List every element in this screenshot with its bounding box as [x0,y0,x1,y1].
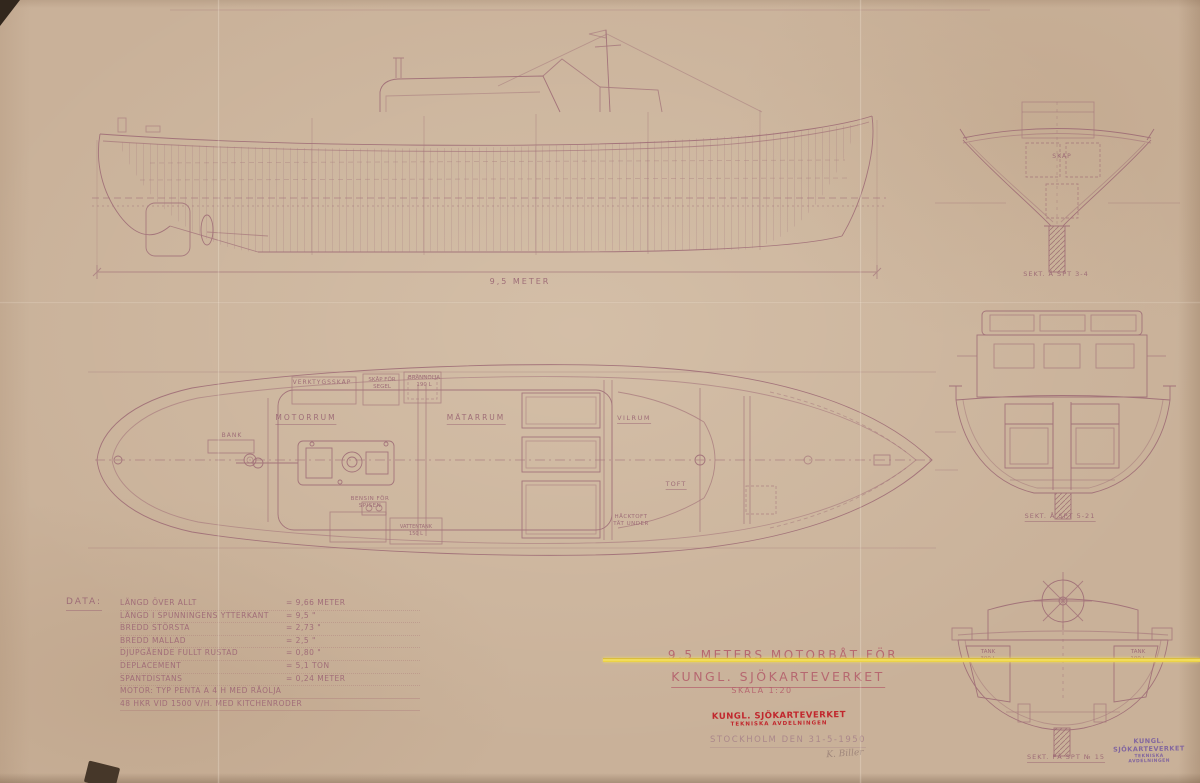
profile-view [92,30,886,279]
stamp-corner-line2: TEKNISKA AVDELNINGEN [1113,753,1185,765]
paper-crease-vertical [217,0,220,783]
plan-label-matarrum: MÄTARRUM [447,413,506,425]
table-row: LÄNGD I SPUNNINGENS YTTERKANT= 9,5 " [120,611,420,624]
bow-section-caption: SEKT. Å SPT 3-4 [1023,270,1089,278]
plan-label-vilrum: VILRUM [617,414,651,424]
stamp-corner-line1: KUNGL. SJÖKARTEVERKET [1113,737,1185,754]
plan-view [88,365,936,556]
profile-dimension-label: 9,5 METER [490,277,551,287]
table-row: DJUPGÅENDE FULLT RUSTAD= 0,80 " [120,648,420,661]
plan-label-motorrum: MOTORRUM [275,413,336,425]
stamp-corner: KUNGL. SJÖKARTEVERKET TEKNISKA AVDELNING… [1113,737,1185,765]
stern-section-caption: SEKT. PÅ SPT № 15 [1027,753,1105,763]
table-row: LÄNGD ÖVER ALLT= 9,66 METER [120,598,420,611]
date-line: STOCKHOLM DEN 31-5-1950 [710,735,866,748]
plan-label-bank: BÄNK [222,432,243,440]
ships-wheel [1034,572,1092,630]
blueprint-sheet: DATA: LÄNGD ÖVER ALLT= 9,66 METER LÄNGD … [0,0,1200,783]
motor-line: 48 HKR VID 1500 V/H. MED KITCHENRODER [120,699,420,712]
table-row: DEPLACEMENT= 5,1 TON [120,661,420,674]
plan-label-skap-for-segel: SKÅP FÖR SEGEL [368,377,395,391]
plan-label-brannolja: BRÄNNOLJA 190 L [408,375,440,389]
paper-crease-horizontal [0,301,1200,304]
drawing-scale: SKALA 1:20 [731,686,792,696]
plan-label-bensin: BENSIN FÖR SPISEN [351,496,390,510]
mid-section-caption: SEKT. Å SPT 5-21 [1025,512,1096,522]
data-table: LÄNGD ÖVER ALLT= 9,66 METER LÄNGD I SPUN… [120,598,420,711]
data-table-heading: DATA: [66,597,102,611]
stamp-center: KUNGL. SJÖKARTEVERKET TEKNISKA AVDELNING… [712,710,846,729]
yellow-highlight-line [603,658,1200,662]
section-stern [952,572,1172,756]
section-bow [935,102,1180,272]
table-row: BREDD MALLAD= 2,5 " [120,636,420,649]
plan-label-hacktoft: HÄCKTOFT TÄT UNDER [613,514,649,528]
engine-plan [236,441,394,485]
bow-section-skap-label: SKÅP [1052,153,1071,161]
plan-label-toft: TOFT [666,480,687,490]
section-mid [935,311,1176,519]
plan-label-verktygsskap: VERKTYGSSKÅP [293,379,352,387]
paper-crease-vertical [859,0,862,783]
motor-line: MOTOR: TYP PENTA A 4 H MED RÅOLJA [120,686,420,699]
table-row: BREDD STÖRSTA= 2,73 " [120,623,420,636]
table-row: SPANTDISTANS= 0,24 METER [120,674,420,687]
torn-corner [0,0,20,26]
plan-label-vattentank: VATTENTANK 150 L [400,524,432,537]
